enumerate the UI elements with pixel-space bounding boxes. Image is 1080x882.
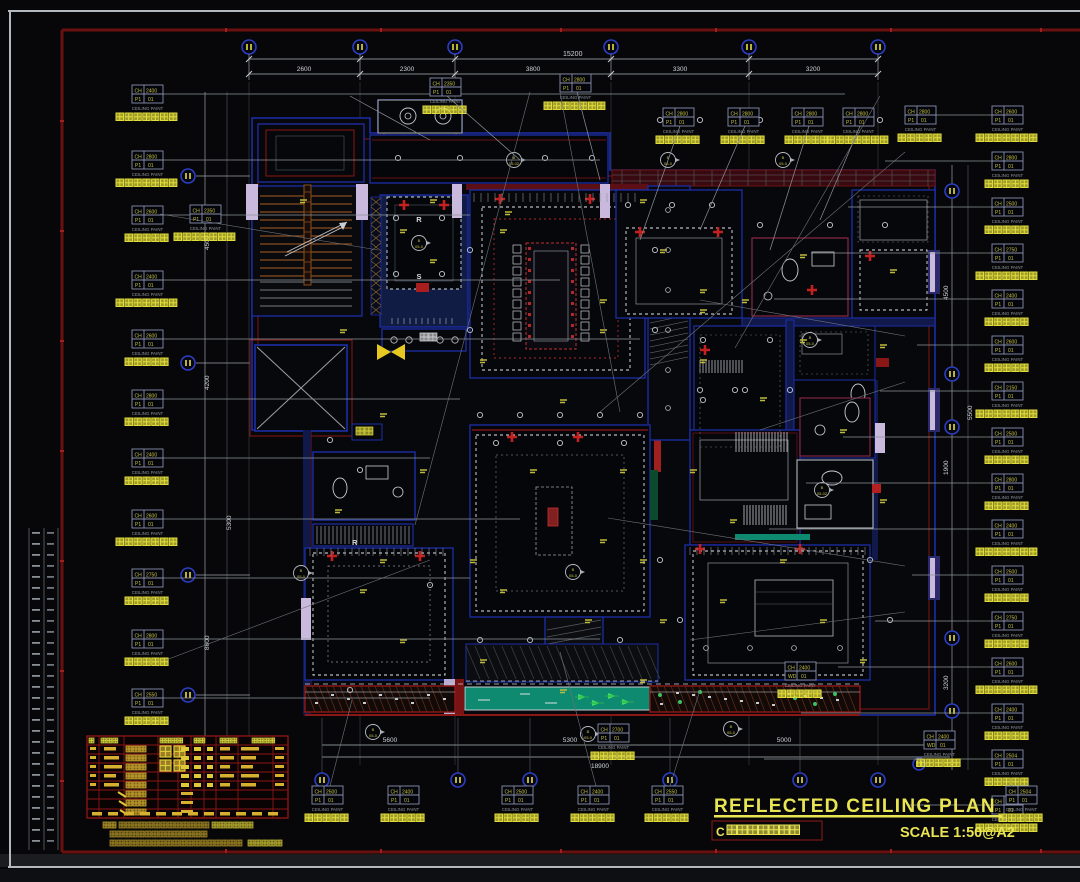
svg-text:B: B [418, 238, 421, 243]
svg-text:2550: 2550 [146, 693, 157, 699]
svg-text:P1: P1 [846, 120, 852, 126]
svg-text:2700: 2700 [612, 728, 623, 734]
svg-text:CH: CH [601, 728, 609, 734]
svg-text:2800: 2800 [677, 112, 688, 118]
svg-text:P1: P1 [666, 120, 672, 126]
svg-text:2400: 2400 [938, 735, 949, 741]
svg-text:2600: 2600 [146, 210, 157, 216]
svg-text:P1: P1 [995, 256, 1001, 262]
svg-text:CEILING PAINT: CEILING PAINT [992, 633, 1024, 638]
svg-text:01: 01 [744, 120, 750, 126]
svg-text:01: 01 [1008, 210, 1014, 216]
svg-text:2400: 2400 [402, 790, 413, 796]
svg-text:CEILING PAINT: CEILING PAINT [430, 99, 462, 104]
svg-text:01: 01 [1008, 578, 1014, 584]
svg-text:01: 01 [1008, 302, 1014, 308]
svg-text:CH: CH [995, 616, 1003, 622]
svg-text:15200: 15200 [563, 51, 583, 58]
svg-text:CH: CH [135, 394, 143, 400]
svg-text:CEILING PAINT: CEILING PAINT [992, 127, 1024, 132]
svg-text:CEILING PAINT: CEILING PAINT [992, 219, 1024, 224]
svg-text:P1: P1 [1009, 798, 1015, 804]
svg-text:18900: 18900 [591, 763, 609, 770]
svg-text:CH: CH [433, 82, 441, 88]
svg-text:P1: P1 [505, 798, 511, 804]
svg-text:P1: P1 [731, 120, 737, 126]
svg-text:2150: 2150 [1006, 386, 1017, 392]
svg-text:2350: 2350 [204, 209, 215, 215]
svg-text:P1: P1 [995, 210, 1001, 216]
svg-text:CH: CH [908, 110, 916, 116]
svg-text:P1: P1 [601, 736, 607, 742]
svg-text:CEILING PAINT: CEILING PAINT [132, 172, 164, 177]
svg-text:2800: 2800 [806, 112, 817, 118]
svg-text:CH: CH [135, 334, 143, 340]
svg-text:R: R [416, 215, 422, 224]
svg-text:B: B [809, 335, 812, 340]
svg-text:01: 01 [859, 120, 865, 126]
svg-text:CEILING PAINT: CEILING PAINT [992, 541, 1024, 546]
svg-text:2500: 2500 [1006, 202, 1017, 208]
svg-text:CH: CH [391, 790, 399, 796]
svg-text:CH: CH [135, 275, 143, 281]
svg-text:CH: CH [995, 110, 1003, 116]
svg-text:CH: CH [995, 340, 1003, 346]
svg-text:CH: CH [995, 524, 1003, 530]
svg-text:01: 01 [148, 218, 154, 224]
svg-text:01: 01 [940, 743, 946, 749]
svg-text:CH: CH [788, 666, 796, 672]
svg-text:01: 01 [1008, 532, 1014, 538]
svg-text:SCALE 1:50@A2: SCALE 1:50@A2 [900, 825, 1015, 841]
svg-text:P1: P1 [581, 798, 587, 804]
svg-text:CH: CH [135, 210, 143, 216]
svg-text:2800: 2800 [574, 78, 585, 84]
svg-text:P1: P1 [135, 701, 141, 707]
svg-text:CEILING PAINT: CEILING PAINT [502, 807, 534, 812]
svg-text:CEILING PAINT: CEILING PAINT [578, 807, 610, 812]
svg-text:01: 01 [1008, 762, 1014, 768]
svg-text:P1: P1 [995, 578, 1001, 584]
svg-text:3200: 3200 [943, 675, 950, 690]
svg-text:01: 01 [148, 461, 154, 467]
svg-text:CEILING PAINT: CEILING PAINT [132, 106, 164, 111]
svg-text:CEILING PAINT: CEILING PAINT [992, 495, 1024, 500]
svg-text:2504: 2504 [1006, 754, 1017, 760]
svg-text:2800: 2800 [1006, 156, 1017, 162]
svg-text:P1: P1 [433, 90, 439, 96]
svg-text:4500: 4500 [943, 285, 950, 300]
svg-text:CH: CH [505, 790, 513, 796]
svg-text:CEILING PAINT: CEILING PAINT [992, 725, 1024, 730]
svg-text:2600: 2600 [146, 514, 157, 520]
svg-text:CEILING PAINT: CEILING PAINT [992, 449, 1024, 454]
svg-text:CH: CH [995, 294, 1003, 300]
svg-text:P1: P1 [135, 97, 141, 103]
svg-text:2800: 2800 [919, 110, 930, 116]
svg-text:CH: CH [995, 432, 1003, 438]
svg-text:CH: CH [995, 248, 1003, 254]
svg-text:P1: P1 [563, 86, 569, 92]
svg-text:CEILING PAINT: CEILING PAINT [992, 357, 1024, 362]
svg-text:CEILING PAINT: CEILING PAINT [132, 590, 164, 595]
svg-text:CH: CH [666, 112, 674, 118]
svg-text:CEILING PAINT: CEILING PAINT [652, 807, 684, 812]
svg-text:B: B [587, 729, 590, 734]
svg-text:CH: CH [135, 693, 143, 699]
svg-text:2300: 2300 [400, 66, 415, 73]
svg-text:1900: 1900 [943, 460, 950, 475]
svg-text:2400: 2400 [1006, 524, 1017, 530]
svg-text:CH: CH [581, 790, 589, 796]
svg-text:CEILING PAINT: CEILING PAINT [785, 683, 817, 688]
svg-text:P1: P1 [135, 581, 141, 587]
svg-text:01: 01 [1008, 256, 1014, 262]
svg-text:01: 01 [576, 86, 582, 92]
svg-text:P1: P1 [655, 798, 661, 804]
svg-text:01: 01 [1008, 624, 1014, 630]
svg-text:P1: P1 [995, 440, 1001, 446]
svg-text:5300: 5300 [563, 737, 578, 744]
svg-text:01: 01 [1022, 798, 1028, 804]
svg-text:CH: CH [995, 156, 1003, 162]
svg-text:CEILING PAINT: CEILING PAINT [312, 807, 344, 812]
svg-text:P1: P1 [995, 670, 1001, 676]
svg-text:CEILING PAINT: CEILING PAINT [924, 752, 956, 757]
svg-text:01: 01 [1008, 348, 1014, 354]
svg-text:CH: CH [795, 112, 803, 118]
svg-text:B: B [730, 724, 733, 729]
svg-text:2350: 2350 [444, 82, 455, 88]
svg-text:CH: CH [135, 155, 143, 161]
svg-text:2400: 2400 [146, 275, 157, 281]
svg-text:CEILING PAINT: CEILING PAINT [132, 651, 164, 656]
svg-text:P1: P1 [995, 348, 1001, 354]
svg-text:05-0: 05-0 [369, 733, 378, 738]
svg-text:01: 01 [404, 798, 410, 804]
svg-text:CEILING PAINT: CEILING PAINT [132, 531, 164, 536]
svg-text:CEILING PAINT: CEILING PAINT [992, 403, 1024, 408]
svg-text:2400: 2400 [592, 790, 603, 796]
svg-text:2800: 2800 [742, 112, 753, 118]
svg-text:01: 01 [921, 118, 927, 124]
svg-text:2800: 2800 [1006, 478, 1017, 484]
svg-text:01: 01 [446, 90, 452, 96]
svg-text:CH: CH [731, 112, 739, 118]
svg-text:P1: P1 [995, 486, 1001, 492]
svg-text:2400: 2400 [799, 666, 810, 672]
svg-text:P1: P1 [135, 461, 141, 467]
svg-text:P1: P1 [995, 532, 1001, 538]
svg-text:01: 01 [1008, 394, 1014, 400]
svg-text:WD: WD [788, 674, 797, 680]
svg-text:01: 01 [148, 522, 154, 528]
svg-text:01: 01 [594, 798, 600, 804]
svg-text:8600: 8600 [204, 635, 211, 650]
svg-text:01: 01 [148, 97, 154, 103]
svg-text:CH: CH [135, 573, 143, 579]
svg-text:P1: P1 [995, 394, 1001, 400]
svg-text:01: 01 [148, 701, 154, 707]
svg-text:01: 01 [614, 736, 620, 742]
svg-text:CEILING PAINT: CEILING PAINT [190, 226, 222, 231]
svg-text:05-0: 05-0 [584, 735, 593, 740]
svg-text:05-0: 05-0 [569, 573, 578, 578]
svg-text:2600: 2600 [1006, 110, 1017, 116]
svg-text:B: B [821, 485, 824, 490]
svg-text:CH: CH [135, 514, 143, 520]
svg-text:2750: 2750 [1006, 616, 1017, 622]
svg-text:CEILING PAINT: CEILING PAINT [1006, 807, 1038, 812]
svg-text:CH: CH [995, 754, 1003, 760]
svg-text:01: 01 [679, 120, 685, 126]
svg-text:01: 01 [148, 163, 154, 169]
svg-text:01: 01 [328, 798, 334, 804]
svg-text:2800: 2800 [146, 394, 157, 400]
svg-text:CEILING PAINT: CEILING PAINT [905, 127, 937, 132]
svg-text:05-0: 05-0 [806, 341, 815, 346]
svg-text:CEILING PAINT: CEILING PAINT [992, 173, 1024, 178]
svg-text:5300: 5300 [226, 515, 233, 530]
svg-text:CEILING PAINT: CEILING PAINT [132, 351, 164, 356]
svg-text:P1: P1 [135, 163, 141, 169]
svg-text:2600: 2600 [297, 66, 312, 73]
svg-text:B: B [372, 727, 375, 732]
svg-text:01: 01 [148, 342, 154, 348]
svg-text:C: C [716, 825, 725, 839]
svg-text:01: 01 [148, 581, 154, 587]
svg-text:CEILING PAINT: CEILING PAINT [132, 411, 164, 416]
svg-text:CH: CH [135, 89, 143, 95]
svg-text:01: 01 [1008, 486, 1014, 492]
svg-text:P1: P1 [995, 302, 1001, 308]
svg-text:P1: P1 [135, 283, 141, 289]
svg-text:CH: CH [995, 478, 1003, 484]
svg-text:B: B [300, 568, 303, 573]
svg-text:2500: 2500 [516, 790, 527, 796]
svg-text:2600: 2600 [146, 334, 157, 340]
svg-text:P1: P1 [135, 642, 141, 648]
svg-text:B: B [782, 155, 785, 160]
svg-text:R: R [352, 538, 358, 547]
svg-text:01: 01 [801, 674, 807, 680]
svg-text:3200: 3200 [806, 66, 821, 73]
svg-text:2400: 2400 [146, 453, 157, 459]
svg-text:P1: P1 [995, 808, 1001, 814]
svg-text:CH: CH [995, 570, 1003, 576]
svg-text:WD: WD [927, 743, 936, 749]
svg-text:P1: P1 [995, 118, 1001, 124]
svg-text:CEILING PAINT: CEILING PAINT [132, 292, 164, 297]
svg-text:01: 01 [808, 120, 814, 126]
svg-text:2600: 2600 [1006, 662, 1017, 668]
svg-text:REFLECTED CEILING PLAN: REFLECTED CEILING PLAN [714, 796, 996, 817]
svg-text:CH: CH [1009, 790, 1017, 796]
svg-text:2500: 2500 [1006, 570, 1017, 576]
svg-text:CH: CH [927, 735, 935, 741]
svg-text:CH: CH [655, 790, 663, 796]
svg-text:5600: 5600 [383, 737, 398, 744]
svg-text:01: 01 [668, 798, 674, 804]
svg-text:01: 01 [1008, 440, 1014, 446]
svg-text:2800: 2800 [857, 112, 868, 118]
svg-text:05-0: 05-0 [779, 161, 788, 166]
svg-text:P1: P1 [135, 522, 141, 528]
svg-text:2800: 2800 [146, 634, 157, 640]
svg-text:01: 01 [1008, 716, 1014, 722]
svg-text:CH: CH [995, 386, 1003, 392]
svg-text:P1: P1 [135, 218, 141, 224]
svg-text:CH: CH [315, 790, 323, 796]
svg-text:CEILING PAINT: CEILING PAINT [388, 807, 420, 812]
svg-text:P1: P1 [795, 120, 801, 126]
svg-text:CEILING PAINT: CEILING PAINT [992, 679, 1024, 684]
svg-text:P1: P1 [391, 798, 397, 804]
svg-text:2504: 2504 [1020, 790, 1031, 796]
svg-text:CH: CH [193, 209, 201, 215]
svg-text:3300: 3300 [673, 66, 688, 73]
svg-text:P1: P1 [995, 624, 1001, 630]
svg-text:01: 01 [148, 642, 154, 648]
svg-text:05-0: 05-0 [664, 161, 673, 166]
svg-text:2750: 2750 [1006, 248, 1017, 254]
svg-text:01: 01 [1008, 118, 1014, 124]
svg-text:CEILING PAINT: CEILING PAINT [992, 265, 1024, 270]
svg-text:CH: CH [995, 662, 1003, 668]
svg-text:05-0: 05-0 [415, 244, 424, 249]
svg-text:CH: CH [563, 78, 571, 84]
svg-text:CEILING PAINT: CEILING PAINT [598, 745, 630, 750]
svg-text:01: 01 [1008, 670, 1014, 676]
svg-text:5000: 5000 [777, 737, 792, 744]
svg-text:CEILING PAINT: CEILING PAINT [132, 710, 164, 715]
svg-text:3800: 3800 [526, 66, 541, 73]
svg-text:2550: 2550 [666, 790, 677, 796]
svg-text:CEILING PAINT: CEILING PAINT [132, 227, 164, 232]
svg-text:2500: 2500 [1006, 432, 1017, 438]
svg-text:P1: P1 [135, 402, 141, 408]
svg-text:CEILING PAINT: CEILING PAINT [992, 311, 1024, 316]
svg-text:CEILING PAINT: CEILING PAINT [560, 95, 592, 100]
svg-text:CH: CH [995, 708, 1003, 714]
svg-text:CH: CH [995, 202, 1003, 208]
svg-text:2500: 2500 [326, 790, 337, 796]
svg-text:05-0: 05-0 [727, 730, 736, 735]
svg-text:2400: 2400 [1006, 294, 1017, 300]
svg-text:CEILING PAINT: CEILING PAINT [992, 771, 1024, 776]
svg-text:P1: P1 [995, 716, 1001, 722]
svg-text:CEILING PAINT: CEILING PAINT [132, 470, 164, 475]
svg-text:01: 01 [518, 798, 524, 804]
svg-text:01: 01 [1008, 164, 1014, 170]
svg-text:CEILING PAINT: CEILING PAINT [992, 587, 1024, 592]
svg-text:4200: 4200 [204, 375, 211, 390]
svg-text:5500: 5500 [967, 405, 974, 420]
svg-text:05-02: 05-02 [817, 491, 828, 496]
svg-text:CH: CH [135, 634, 143, 640]
svg-text:B: B [572, 567, 575, 572]
svg-text:CH: CH [135, 453, 143, 459]
svg-text:01: 01 [148, 283, 154, 289]
svg-text:01: 01 [148, 402, 154, 408]
svg-text:2400: 2400 [1006, 708, 1017, 714]
svg-text:P1: P1 [135, 342, 141, 348]
svg-text:2600: 2600 [1006, 340, 1017, 346]
svg-text:2800: 2800 [146, 155, 157, 161]
svg-text:P1: P1 [995, 164, 1001, 170]
svg-text:P1: P1 [908, 118, 914, 124]
svg-text:CH: CH [846, 112, 854, 118]
svg-text:P1: P1 [315, 798, 321, 804]
svg-text:P1: P1 [995, 762, 1001, 768]
svg-text:2750: 2750 [146, 573, 157, 579]
svg-text:2400: 2400 [146, 89, 157, 95]
